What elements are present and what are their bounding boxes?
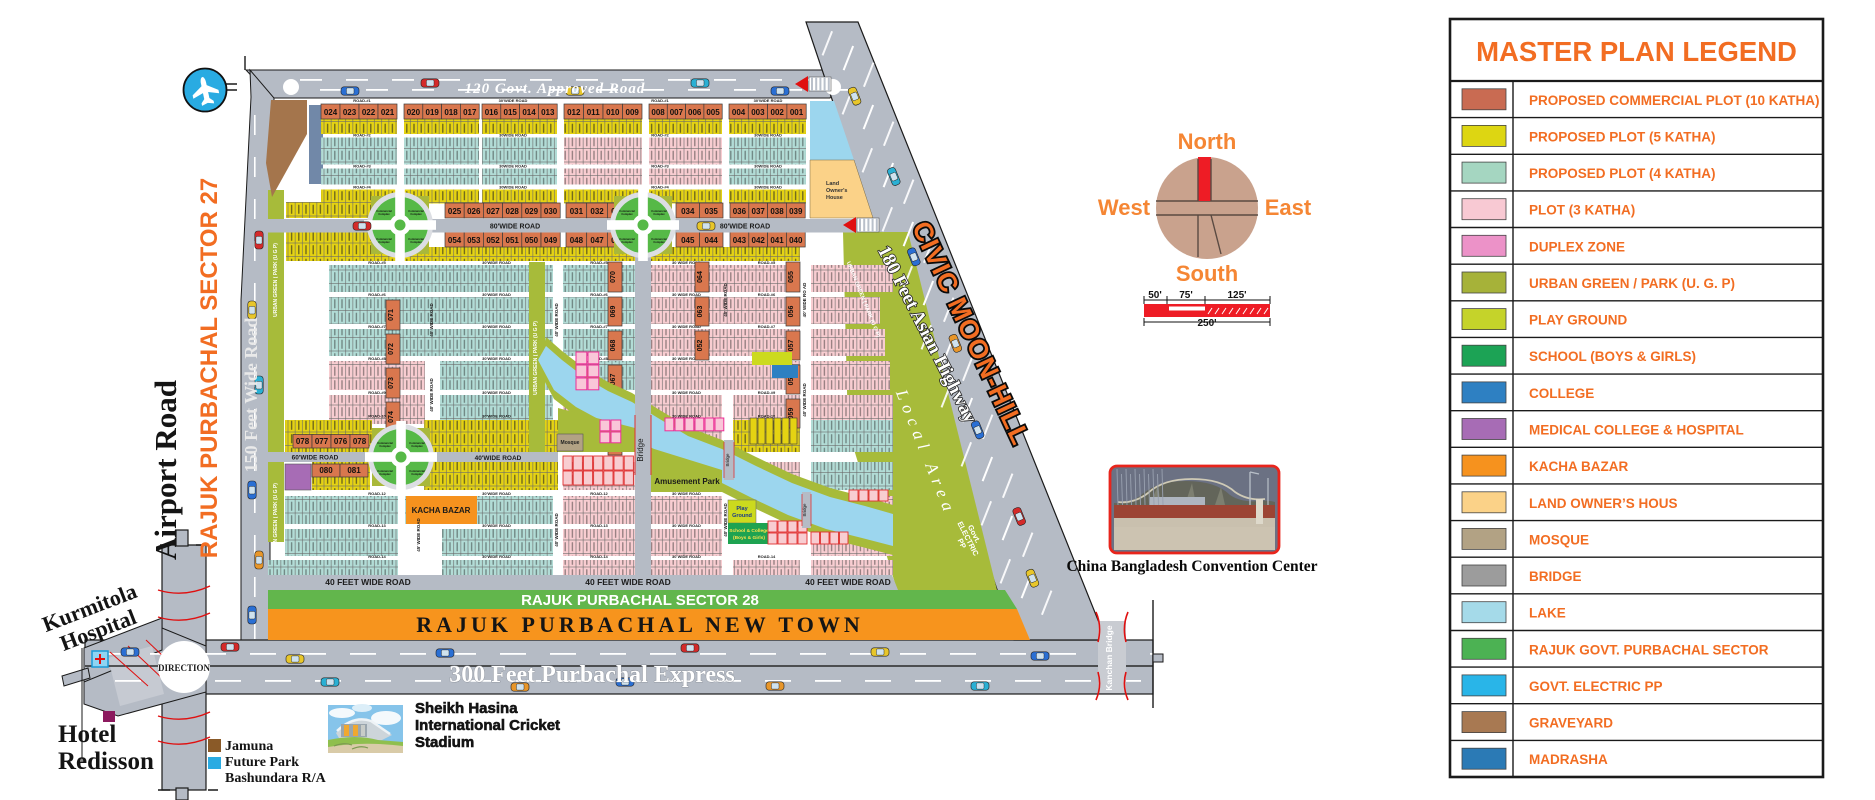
svg-text:005: 005 bbox=[706, 108, 720, 117]
svg-text:ROAD-#7: ROAD-#7 bbox=[758, 324, 776, 329]
svg-text:GRAVEYARD: GRAVEYARD bbox=[1529, 716, 1613, 731]
svg-text:017: 017 bbox=[463, 108, 477, 117]
svg-text:30 WIDE ROAD: 30 WIDE ROAD bbox=[672, 523, 701, 528]
svg-text:020: 020 bbox=[407, 108, 421, 117]
svg-text:036: 036 bbox=[733, 207, 747, 216]
svg-text:032: 032 bbox=[590, 207, 604, 216]
svg-text:056: 056 bbox=[788, 306, 795, 318]
svg-text:Play: Play bbox=[736, 506, 748, 512]
svg-text:078: 078 bbox=[353, 437, 367, 446]
svg-text:Bridge: Bridge bbox=[802, 503, 807, 517]
svg-text:30 WIDE ROAD: 30 WIDE ROAD bbox=[672, 390, 701, 395]
svg-text:250': 250' bbox=[1197, 318, 1216, 329]
svg-text:PLAY GROUND: PLAY GROUND bbox=[1529, 313, 1628, 328]
svg-text:040: 040 bbox=[789, 236, 803, 245]
svg-text:40' WIDE RO AD: 40' WIDE RO AD bbox=[802, 282, 807, 317]
svg-text:006: 006 bbox=[688, 108, 702, 117]
svg-text:Complex: Complex bbox=[621, 212, 633, 216]
svg-text:023: 023 bbox=[343, 108, 357, 117]
svg-text:041: 041 bbox=[770, 236, 784, 245]
svg-text:Complex: Complex bbox=[411, 472, 423, 476]
svg-text:Complex: Complex bbox=[379, 472, 391, 476]
svg-text:ROAD-13: ROAD-13 bbox=[590, 523, 608, 528]
svg-text:045: 045 bbox=[681, 236, 695, 245]
svg-text:30'WIDE ROAD: 30'WIDE ROAD bbox=[482, 260, 511, 265]
svg-text:30'WIDE ROAD: 30'WIDE ROAD bbox=[482, 390, 511, 395]
svg-text:(Boys & Girls): (Boys & Girls) bbox=[733, 535, 765, 541]
svg-text:ROAD-10: ROAD-10 bbox=[368, 414, 386, 419]
svg-text:057: 057 bbox=[788, 340, 795, 352]
svg-text:Airport Road: Airport Road bbox=[148, 380, 183, 560]
svg-text:URBAN GREEN / PARK (U. G. P): URBAN GREEN / PARK (U. G. P) bbox=[1529, 276, 1735, 291]
svg-text:069: 069 bbox=[610, 306, 617, 318]
svg-text:074: 074 bbox=[388, 411, 395, 423]
svg-text:021: 021 bbox=[381, 108, 395, 117]
svg-text:40 FEET WIDE ROAD: 40 FEET WIDE ROAD bbox=[585, 577, 670, 587]
svg-text:Complex: Complex bbox=[653, 240, 665, 244]
svg-text:050: 050 bbox=[525, 236, 539, 245]
svg-text:015: 015 bbox=[504, 108, 518, 117]
svg-text:ROAD-#6: ROAD-#6 bbox=[758, 292, 776, 297]
svg-text:80'WIDE ROAD: 80'WIDE ROAD bbox=[490, 224, 540, 231]
svg-text:064: 064 bbox=[697, 271, 704, 283]
svg-text:ROAD-12: ROAD-12 bbox=[590, 491, 608, 496]
svg-text:ROAD-#3: ROAD-#3 bbox=[651, 163, 669, 168]
svg-text:Complex: Complex bbox=[621, 240, 633, 244]
svg-text:Owner's: Owner's bbox=[826, 188, 847, 194]
svg-text:DUPLEX ZONE: DUPLEX ZONE bbox=[1529, 239, 1625, 254]
svg-text:BRIDGE: BRIDGE bbox=[1529, 569, 1582, 584]
svg-text:300 Feet Purbachal Express: 300 Feet Purbachal Express bbox=[449, 662, 735, 688]
svg-text:051: 051 bbox=[506, 236, 520, 245]
svg-text:077: 077 bbox=[315, 437, 329, 446]
svg-text:KACHA BAZAR: KACHA BAZAR bbox=[412, 506, 471, 515]
svg-text:072: 072 bbox=[388, 343, 395, 355]
svg-text:Complex: Complex bbox=[410, 212, 422, 216]
svg-text:ROAD-14: ROAD-14 bbox=[368, 554, 386, 559]
svg-text:40' WIDE ROAD: 40' WIDE ROAD bbox=[554, 512, 559, 546]
svg-text:ROAD-#5: ROAD-#5 bbox=[758, 260, 776, 265]
svg-text:ROAD-#1: ROAD-#1 bbox=[353, 98, 371, 103]
svg-text:30'WIDE ROAD: 30'WIDE ROAD bbox=[482, 414, 511, 419]
svg-text:ROAD-#2: ROAD-#2 bbox=[651, 132, 669, 137]
svg-text:PLOT (3 KATHA): PLOT (3 KATHA) bbox=[1529, 203, 1635, 218]
svg-text:013: 013 bbox=[541, 108, 555, 117]
svg-text:LAND OWNER’S HOUS: LAND OWNER’S HOUS bbox=[1529, 496, 1678, 511]
svg-text:30'WIDE ROAD: 30'WIDE ROAD bbox=[482, 324, 511, 329]
svg-text:Future Park: Future Park bbox=[225, 755, 299, 770]
svg-text:ROAD-14: ROAD-14 bbox=[758, 554, 776, 559]
svg-text:120 Govt. Approved Road: 120 Govt. Approved Road bbox=[465, 81, 646, 97]
svg-text:Mosque: Mosque bbox=[561, 440, 580, 446]
svg-text:40' WIDE ROAD: 40' WIDE ROAD bbox=[723, 502, 728, 536]
svg-text:ROAD-#5: ROAD-#5 bbox=[368, 260, 386, 265]
svg-text:PROPOSED PLOT (5 KATHA): PROPOSED PLOT (5 KATHA) bbox=[1529, 129, 1716, 144]
svg-text:RAJUK PURBACHAL NEW TOWN: RAJUK PURBACHAL NEW TOWN bbox=[416, 612, 863, 637]
svg-text:076: 076 bbox=[334, 437, 348, 446]
svg-text:URBAN GREEN ( PARK (U G P): URBAN GREEN ( PARK (U G P) bbox=[273, 483, 279, 557]
svg-text:40 FEET WIDE ROAD: 40 FEET WIDE ROAD bbox=[805, 577, 890, 587]
svg-text:001: 001 bbox=[790, 108, 804, 117]
svg-text:West: West bbox=[1098, 195, 1151, 220]
svg-text:004: 004 bbox=[732, 108, 746, 117]
svg-text:50': 50' bbox=[1148, 290, 1162, 301]
svg-text:ROAD-13: ROAD-13 bbox=[368, 523, 386, 528]
svg-text:RAJUK GOVT. PURBACHAL SECTOR: RAJUK GOVT. PURBACHAL SECTOR bbox=[1529, 642, 1769, 657]
svg-text:30 WIDE ROAD: 30 WIDE ROAD bbox=[672, 292, 701, 297]
svg-text:ROAD-#7: ROAD-#7 bbox=[368, 324, 386, 329]
svg-text:40 FEET WIDE ROAD: 40 FEET WIDE ROAD bbox=[325, 577, 410, 587]
svg-text:40' WIDE ROAD: 40' WIDE ROAD bbox=[429, 302, 434, 336]
svg-text:MEDICAL COLLEGE & HOSPITAL: MEDICAL COLLEGE & HOSPITAL bbox=[1529, 423, 1744, 438]
svg-text:GOVT. ELECTRIC PP: GOVT. ELECTRIC PP bbox=[1529, 679, 1663, 694]
svg-text:40' WIDE ROAD: 40' WIDE ROAD bbox=[802, 382, 807, 416]
svg-text:063: 063 bbox=[697, 306, 704, 318]
svg-text:048: 048 bbox=[570, 236, 584, 245]
svg-text:30'WIDE ROAD: 30'WIDE ROAD bbox=[482, 292, 511, 297]
svg-text:034: 034 bbox=[681, 207, 695, 216]
svg-text:30 WIDE ROAD: 30 WIDE ROAD bbox=[672, 554, 701, 559]
svg-text:DIRECTION: DIRECTION bbox=[158, 663, 211, 673]
svg-text:MASTER PLAN LEGEND: MASTER PLAN LEGEND bbox=[1476, 36, 1797, 67]
svg-text:40'WIDE ROAD: 40'WIDE ROAD bbox=[475, 455, 522, 462]
svg-text:40' WIDE ROAD: 40' WIDE ROAD bbox=[723, 282, 728, 316]
svg-text:044: 044 bbox=[705, 236, 719, 245]
svg-text:039: 039 bbox=[789, 207, 803, 216]
svg-text:30WIDE ROAD: 30WIDE ROAD bbox=[754, 163, 782, 168]
svg-text:010: 010 bbox=[606, 108, 620, 117]
svg-text:038: 038 bbox=[770, 207, 784, 216]
svg-text:003: 003 bbox=[751, 108, 765, 117]
svg-text:037: 037 bbox=[752, 207, 766, 216]
svg-text:ROAD-#9: ROAD-#9 bbox=[368, 390, 386, 395]
svg-text:031: 031 bbox=[570, 207, 584, 216]
svg-text:078: 078 bbox=[296, 437, 310, 446]
svg-text:60'WIDE ROAD: 60'WIDE ROAD bbox=[292, 455, 339, 462]
svg-text:30WIDE ROAD: 30WIDE ROAD bbox=[754, 184, 782, 189]
svg-text:South: South bbox=[1176, 261, 1238, 286]
svg-text:054: 054 bbox=[448, 236, 462, 245]
svg-text:059: 059 bbox=[788, 408, 795, 420]
svg-text:025: 025 bbox=[448, 207, 462, 216]
svg-text:026: 026 bbox=[467, 207, 481, 216]
svg-text:029: 029 bbox=[525, 207, 539, 216]
svg-text:002: 002 bbox=[771, 108, 785, 117]
svg-text:ROAD-#4: ROAD-#4 bbox=[353, 184, 371, 189]
svg-text:Bashundara R/A: Bashundara R/A bbox=[225, 771, 327, 786]
svg-text:ROAD-#5: ROAD-#5 bbox=[590, 260, 608, 265]
svg-text:Complex: Complex bbox=[410, 240, 422, 244]
svg-text:Complex: Complex bbox=[378, 212, 390, 216]
svg-text:ROAD-14: ROAD-14 bbox=[590, 554, 608, 559]
svg-text:024: 024 bbox=[324, 108, 338, 117]
svg-text:Bridge: Bridge bbox=[725, 453, 730, 467]
svg-text:ROAD-#9: ROAD-#9 bbox=[758, 390, 776, 395]
svg-text:035: 035 bbox=[705, 207, 719, 216]
svg-text:East: East bbox=[1265, 195, 1312, 220]
svg-text:MOSQUE: MOSQUE bbox=[1529, 532, 1589, 547]
svg-text:ROAD-#1: ROAD-#1 bbox=[651, 98, 669, 103]
svg-text:Bridge: Bridge bbox=[636, 438, 645, 462]
svg-text:011: 011 bbox=[587, 108, 600, 117]
svg-text:043: 043 bbox=[733, 236, 747, 245]
svg-text:047: 047 bbox=[590, 236, 604, 245]
svg-text:30'WIDE ROAD: 30'WIDE ROAD bbox=[482, 491, 511, 496]
svg-text:North: North bbox=[1178, 129, 1237, 154]
svg-text:LAKE: LAKE bbox=[1529, 606, 1566, 621]
svg-text:070: 070 bbox=[610, 271, 617, 283]
svg-text:30'WIDE ROAD: 30'WIDE ROAD bbox=[482, 523, 511, 528]
svg-text:Sheikh Hasina: Sheikh Hasina bbox=[415, 700, 518, 717]
svg-text:MADRASHA: MADRASHA bbox=[1529, 752, 1608, 767]
svg-text:012: 012 bbox=[567, 108, 581, 117]
svg-text:ROAD-#6: ROAD-#6 bbox=[368, 292, 386, 297]
svg-text:30WIDE ROAD: 30WIDE ROAD bbox=[754, 132, 782, 137]
svg-text:COLLEGE: COLLEGE bbox=[1529, 386, 1594, 401]
svg-text:PROPOSED COMMERCIAL PLOT (10 K: PROPOSED COMMERCIAL PLOT (10 KATHA) bbox=[1529, 93, 1820, 108]
svg-text:055: 055 bbox=[788, 271, 795, 283]
svg-text:081: 081 bbox=[347, 466, 361, 475]
svg-text:ROAD-#4: ROAD-#4 bbox=[651, 184, 669, 189]
svg-text:Kanchan Bridge: Kanchan Bridge bbox=[1104, 625, 1114, 690]
svg-text:073: 073 bbox=[388, 377, 395, 389]
svg-text:RAJUK PURBACHAL SECTOR 27: RAJUK PURBACHAL SECTOR 27 bbox=[196, 178, 223, 559]
svg-text:International Cricket: International Cricket bbox=[415, 717, 560, 734]
svg-text:30'WIDE ROAD: 30'WIDE ROAD bbox=[499, 98, 528, 103]
svg-text:Complex: Complex bbox=[379, 444, 391, 448]
svg-text:45' WIDE ROAD: 45' WIDE ROAD bbox=[416, 517, 421, 551]
svg-text:Land: Land bbox=[826, 181, 839, 187]
svg-text:027: 027 bbox=[486, 207, 500, 216]
svg-text:052: 052 bbox=[697, 340, 704, 352]
svg-text:022: 022 bbox=[362, 108, 376, 117]
svg-text:008: 008 bbox=[651, 108, 665, 117]
svg-text:ROAD-12: ROAD-12 bbox=[368, 491, 386, 496]
svg-text:China Bangladesh Convention Ce: China Bangladesh Convention Center bbox=[1066, 558, 1317, 575]
svg-text:Complex: Complex bbox=[378, 240, 390, 244]
svg-text:40' WIDE ROAD: 40' WIDE ROAD bbox=[554, 302, 559, 336]
svg-text:School & College: School & College bbox=[729, 528, 769, 534]
svg-text:068: 068 bbox=[610, 340, 617, 352]
svg-text:Redisson: Redisson bbox=[58, 748, 154, 775]
svg-text:ROAD-#2: ROAD-#2 bbox=[353, 132, 371, 137]
svg-text:007: 007 bbox=[670, 108, 684, 117]
svg-text:125': 125' bbox=[1227, 290, 1246, 301]
svg-text:Ground: Ground bbox=[732, 513, 752, 519]
svg-text:019: 019 bbox=[426, 108, 440, 117]
svg-text:PROPOSED PLOT (4 KATHA): PROPOSED PLOT (4 KATHA) bbox=[1529, 166, 1716, 181]
svg-text:Hotel: Hotel bbox=[58, 721, 116, 748]
svg-text:40' WIDE ROAD: 40' WIDE ROAD bbox=[429, 377, 434, 411]
svg-text:RAJUK PURBACHAL SECTOR 28: RAJUK PURBACHAL SECTOR 28 bbox=[521, 592, 759, 609]
svg-text:009: 009 bbox=[626, 108, 640, 117]
svg-text:071: 071 bbox=[388, 309, 395, 321]
svg-text:049: 049 bbox=[544, 236, 558, 245]
svg-text:030: 030 bbox=[544, 207, 558, 216]
svg-text:75': 75' bbox=[1179, 290, 1193, 301]
svg-text:SCHOOL (BOYS & GIRLS): SCHOOL (BOYS & GIRLS) bbox=[1529, 349, 1696, 364]
svg-text:30WIDE ROAD: 30WIDE ROAD bbox=[499, 184, 527, 189]
svg-text:053: 053 bbox=[467, 236, 481, 245]
svg-text:Complex: Complex bbox=[411, 444, 423, 448]
svg-text:052: 052 bbox=[486, 236, 500, 245]
svg-text:KACHA BAZAR: KACHA BAZAR bbox=[1529, 459, 1628, 474]
svg-text:042: 042 bbox=[752, 236, 766, 245]
svg-text:URBAN GREEN ( PARK (U G P): URBAN GREEN ( PARK (U G P) bbox=[273, 243, 279, 317]
svg-text:80'WIDE ROAD: 80'WIDE ROAD bbox=[720, 224, 770, 231]
svg-text:080: 080 bbox=[319, 466, 333, 475]
svg-text:ROAD-#7: ROAD-#7 bbox=[590, 324, 608, 329]
svg-text:URBAN GREEN ( PARK (U G P): URBAN GREEN ( PARK (U G P) bbox=[533, 321, 539, 395]
svg-text:House: House bbox=[826, 195, 843, 201]
svg-text:ROAD-#3: ROAD-#3 bbox=[353, 163, 371, 168]
svg-text:016: 016 bbox=[485, 108, 499, 117]
svg-text:018: 018 bbox=[444, 108, 458, 117]
svg-text:Stadium: Stadium bbox=[415, 734, 474, 751]
svg-text:014: 014 bbox=[522, 108, 536, 117]
svg-text:30WIDE ROAD: 30WIDE ROAD bbox=[499, 163, 527, 168]
svg-text:ROAD-#8: ROAD-#8 bbox=[368, 356, 386, 361]
svg-text:30WIDE ROAD: 30WIDE ROAD bbox=[499, 132, 527, 137]
svg-text:Amusement Park: Amusement Park bbox=[654, 477, 720, 486]
svg-text:Jamuna: Jamuna bbox=[225, 739, 273, 754]
svg-text:30'WIDE ROAD: 30'WIDE ROAD bbox=[482, 356, 511, 361]
svg-text:30'WIDE ROAD: 30'WIDE ROAD bbox=[482, 554, 511, 559]
svg-text:028: 028 bbox=[506, 207, 520, 216]
svg-text:Complex: Complex bbox=[653, 212, 665, 216]
svg-text:150 Feet Wide Road: 150 Feet Wide Road bbox=[241, 318, 261, 473]
svg-text:ROAD-#6: ROAD-#6 bbox=[590, 292, 608, 297]
svg-text:30'WIDE ROAD: 30'WIDE ROAD bbox=[754, 98, 783, 103]
